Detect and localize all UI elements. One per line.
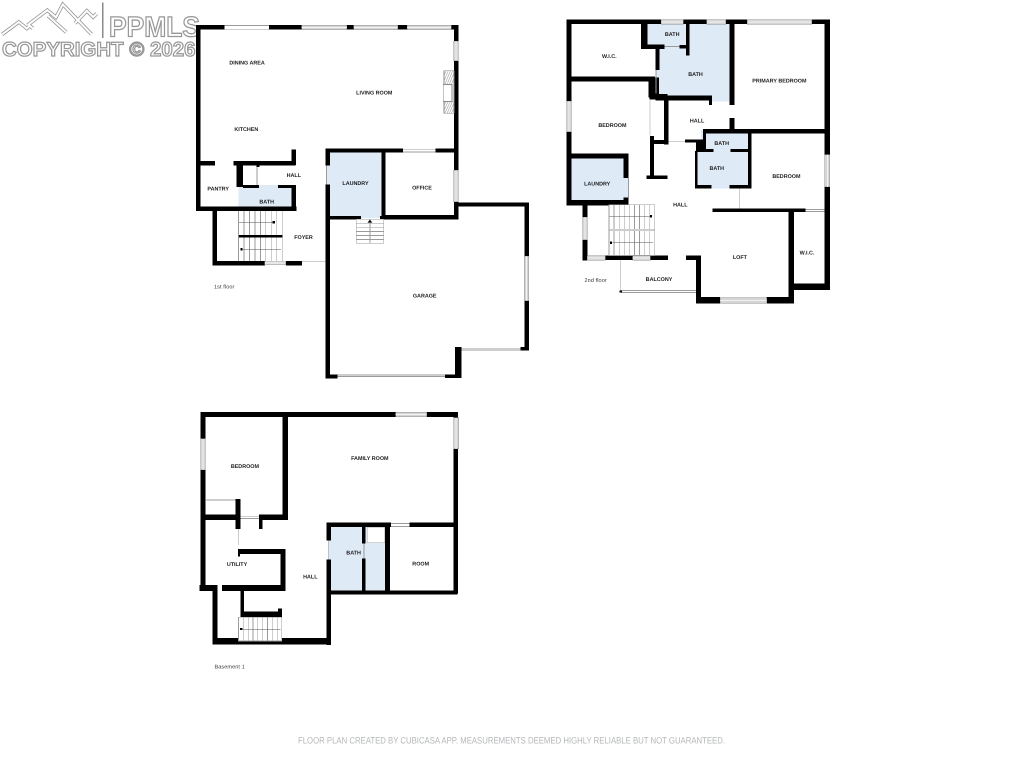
svg-text:LIVING ROOM: LIVING ROOM [356, 90, 393, 96]
svg-text:KITCHEN: KITCHEN [234, 127, 258, 133]
svg-text:LAUNDRY: LAUNDRY [342, 181, 369, 187]
svg-text:HALL: HALL [690, 119, 705, 125]
svg-text:FLOOR PLAN CREATED BY CUBICASA: FLOOR PLAN CREATED BY CUBICASA APP. MEAS… [298, 736, 725, 746]
svg-text:UTILITY: UTILITY [227, 562, 248, 568]
svg-text:GARAGE: GARAGE [413, 293, 437, 299]
svg-text:Basement 1: Basement 1 [215, 664, 245, 670]
svg-text:HALL: HALL [287, 173, 302, 179]
svg-text:BEDROOM: BEDROOM [231, 464, 260, 470]
svg-text:W.I.C.: W.I.C. [800, 251, 815, 257]
svg-text:BATH: BATH [346, 550, 361, 556]
svg-text:1st floor: 1st floor [214, 284, 235, 290]
svg-text:OFFICE: OFFICE [412, 186, 432, 192]
svg-text:ROOM: ROOM [412, 561, 429, 567]
svg-text:PANTRY: PANTRY [207, 186, 229, 192]
svg-text:BEDROOM: BEDROOM [598, 123, 627, 129]
svg-text:BATH: BATH [688, 72, 703, 78]
svg-text:FOYER: FOYER [294, 235, 313, 241]
svg-text:BATH: BATH [714, 141, 729, 147]
svg-text:BATH: BATH [710, 166, 725, 172]
svg-text:BATH: BATH [259, 200, 274, 206]
svg-text:LAUNDRY: LAUNDRY [584, 181, 611, 187]
svg-text:BALCONY: BALCONY [646, 277, 673, 283]
svg-text:LOFT: LOFT [733, 255, 748, 261]
svg-text:2nd floor: 2nd floor [585, 278, 607, 284]
svg-text:FAMILY ROOM: FAMILY ROOM [351, 456, 389, 462]
svg-text:HALL: HALL [303, 575, 318, 581]
svg-text:W.I.C.: W.I.C. [602, 54, 617, 60]
svg-text:DINING AREA: DINING AREA [229, 61, 265, 67]
svg-text:PRIMARY BEDROOM: PRIMARY BEDROOM [752, 79, 807, 85]
svg-text:BATH: BATH [665, 32, 680, 38]
svg-text:HALL: HALL [673, 202, 688, 208]
svg-text:COPYRIGHT © 2026: COPYRIGHT © 2026 [2, 39, 196, 61]
svg-text:BEDROOM: BEDROOM [772, 174, 801, 180]
